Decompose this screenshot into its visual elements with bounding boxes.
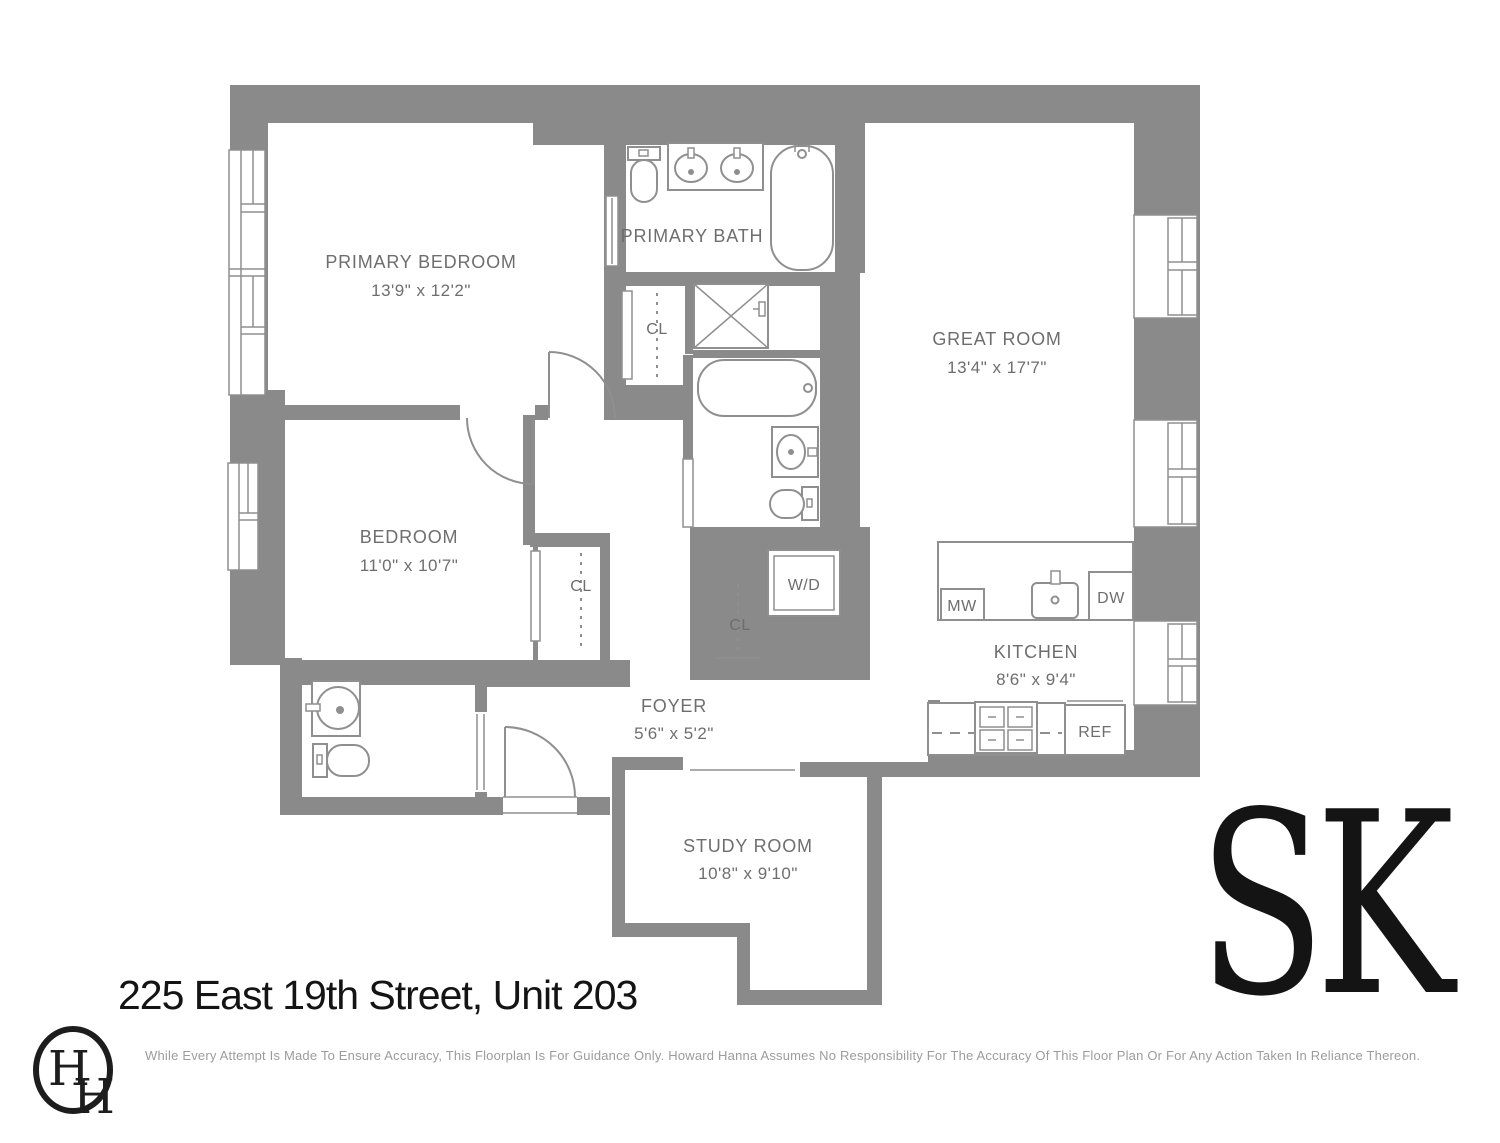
room-label-kitchen: KITCHEN xyxy=(994,642,1079,662)
closet-door xyxy=(622,291,632,379)
room-label-primary-bedroom: PRIMARY BEDROOM xyxy=(325,252,516,272)
room-dims-bedroom: 11'0" x 10'7" xyxy=(360,556,458,575)
closet-label: CL xyxy=(646,321,667,338)
room-label-bedroom: BEDROOM xyxy=(360,527,459,547)
window-icon xyxy=(1134,621,1197,705)
toilet-icon xyxy=(628,147,660,202)
microwave-label: MW xyxy=(947,598,977,615)
closet-label: CL xyxy=(729,617,750,634)
room-dims-foyer: 5'6" x 5'2" xyxy=(634,724,714,743)
room-dims-study-room: 10'8" x 9'10" xyxy=(698,864,798,883)
closet-door xyxy=(531,551,540,641)
toilet-icon xyxy=(313,744,369,777)
stove-icon xyxy=(975,702,1037,753)
sink-icon xyxy=(306,681,360,736)
pocket-door xyxy=(606,196,618,266)
address-title: 225 East 19th Street, Unit 203 xyxy=(118,972,637,1019)
bathtub-icon xyxy=(698,360,816,416)
room-label-primary-bath: PRIMARY BATH xyxy=(621,226,764,246)
room-label-study-room: STUDY ROOM xyxy=(683,836,813,856)
room-dims-kitchen: 8'6" x 9'4" xyxy=(996,670,1076,689)
window-icon xyxy=(229,150,265,395)
sk-logo: SK xyxy=(1198,780,1444,1032)
double-sink-vanity-icon xyxy=(668,143,763,190)
second-bath-fixtures xyxy=(306,681,369,777)
room-dims-great-room: 13'4" x 17'7" xyxy=(947,358,1047,377)
window-icon xyxy=(228,463,258,570)
sink-icon xyxy=(772,427,818,477)
dishwasher-label: DW xyxy=(1097,590,1125,607)
sk-logo-text: SK xyxy=(1198,759,1444,1052)
toilet-icon xyxy=(770,487,818,520)
washer-dryer-label: W/D xyxy=(788,577,821,594)
hh-monogram-h2: H xyxy=(73,1069,115,1118)
primary-bath-fixtures xyxy=(628,143,833,270)
room-label-foyer: FOYER xyxy=(641,696,707,716)
sliding-door xyxy=(471,712,491,792)
bathtub-icon xyxy=(771,145,833,270)
floorplan-page: PRIMARY BEDROOM 13'9" x 12'2" PRIMARY BA… xyxy=(0,0,1500,1143)
window-icon xyxy=(1134,420,1197,527)
hall-bath-fixtures xyxy=(694,284,818,520)
window-icon xyxy=(1134,215,1197,318)
pocket-door xyxy=(683,459,693,527)
shower-icon xyxy=(694,284,768,348)
howard-hanna-logo: H H xyxy=(27,1022,119,1118)
refrigerator-label: REF xyxy=(1078,724,1112,741)
entry-door-arc xyxy=(503,727,577,815)
room-label-great-room: GREAT ROOM xyxy=(932,329,1061,349)
closet-label: CL xyxy=(570,578,591,595)
room-dims-primary-bedroom: 13'9" x 12'2" xyxy=(371,281,471,300)
